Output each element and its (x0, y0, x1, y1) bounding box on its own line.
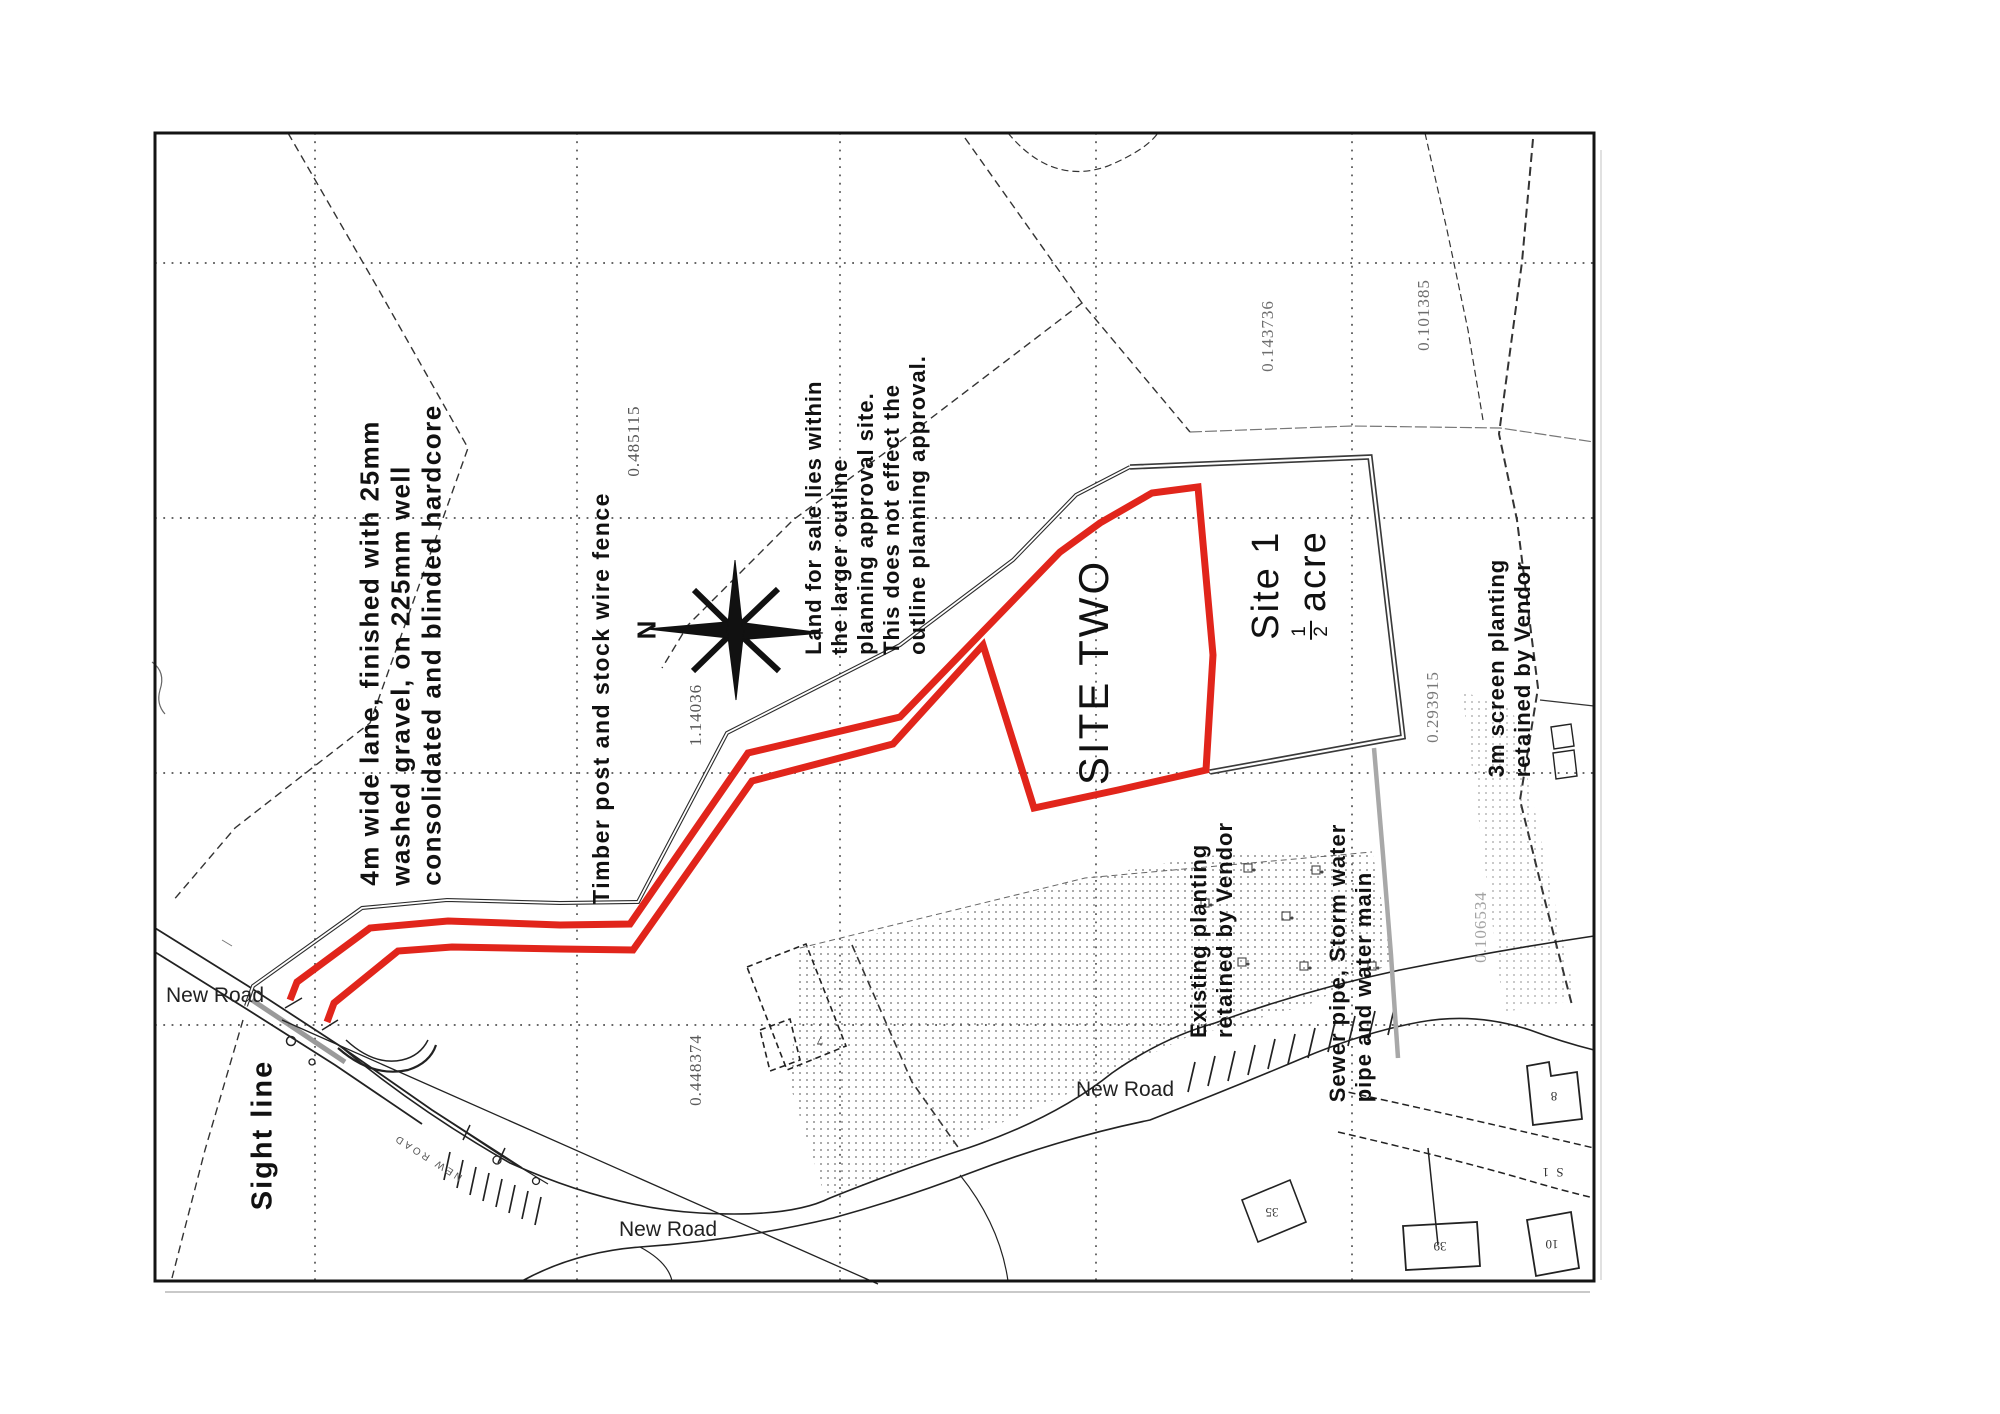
site-one-line2: 12acre (1290, 530, 1337, 640)
lane-note-line: consolidated and blinded hardcore (417, 404, 448, 885)
road-corner-text: S 1 (1541, 1164, 1564, 1180)
screen-planting-line: 3m screen planting (1484, 559, 1510, 778)
sewer-note-line: Sewer pipe, Storm water (1325, 824, 1351, 1103)
sight-line-label: Sight line (247, 1060, 280, 1211)
land-sale-line: Land for sale lies within (801, 355, 827, 655)
building-number: 35 (1266, 1204, 1279, 1220)
existing-planting-area (790, 692, 1576, 1197)
new-road-label: New Road (619, 1218, 717, 1242)
site-plan-drawing (0, 0, 2000, 1414)
fence-note: Timber post and stock wire fence (588, 492, 614, 904)
lane-note-line: 4m wide lane, finished with 25mm (355, 404, 386, 885)
land-sale-line: the larger outline (827, 355, 853, 655)
new-road-label: New Road (166, 984, 264, 1008)
existing-planting-line: Existing planting (1186, 822, 1212, 1038)
parcel-number: 0.293915 (1423, 671, 1443, 743)
sewer-note-line: pipe and water main (1351, 824, 1377, 1103)
land-sale-line: outline planning approval. (905, 355, 931, 655)
acre-word: acre (1292, 530, 1334, 612)
parcel-number: 0.448374 (686, 1034, 706, 1106)
sewer-note: Sewer pipe, Storm water pipe and water m… (1325, 824, 1377, 1103)
land-sale-note: Land for sale lies within the larger out… (801, 355, 931, 655)
fraction-denominator: 2 (1312, 621, 1332, 640)
half-fraction: 12 (1290, 621, 1332, 640)
sight-line-path (282, 1020, 878, 1284)
parcel-number: 0.106534 (1471, 891, 1491, 963)
land-sale-line: This does not effect the (879, 355, 905, 655)
land-sale-line: planning approval site. (853, 355, 879, 655)
building-number: 7 (817, 1032, 824, 1048)
lane-note: 4m wide lane, finished with 25mm washed … (355, 404, 448, 885)
parcel-number: 0.143736 (1258, 300, 1278, 372)
compass-north-label: N (632, 621, 663, 640)
parcel-number: 1.14036 (686, 684, 706, 746)
building-number: 8 (1551, 1088, 1558, 1104)
new-road-label: New Road (1076, 1078, 1174, 1102)
junction-details (285, 998, 540, 1185)
site-plan-page: 4m wide lane, finished with 25mm washed … (0, 0, 2000, 1414)
existing-planting-line: retained by Vendor (1212, 822, 1238, 1038)
building-number: 10 (1546, 1236, 1559, 1252)
building-number: 39 (1434, 1238, 1447, 1254)
fraction-numerator: 1 (1290, 621, 1312, 640)
site-one-title: Site 1 12acre (1243, 530, 1337, 640)
lane-note-line: washed gravel, on 225mm well (386, 404, 417, 885)
site-one-line1: Site 1 (1243, 530, 1290, 640)
compass-rose (647, 560, 823, 700)
parcel-number: 0.101385 (1414, 279, 1434, 351)
screen-planting-line: retained by Vendor (1510, 559, 1536, 778)
existing-planting-note: Existing planting retained by Vendor (1186, 822, 1238, 1038)
screen-planting-note: 3m screen planting retained by Vendor (1484, 559, 1536, 778)
site-two-title: SITE TWO (1070, 559, 1118, 785)
parcel-number: 0.485115 (624, 405, 644, 476)
